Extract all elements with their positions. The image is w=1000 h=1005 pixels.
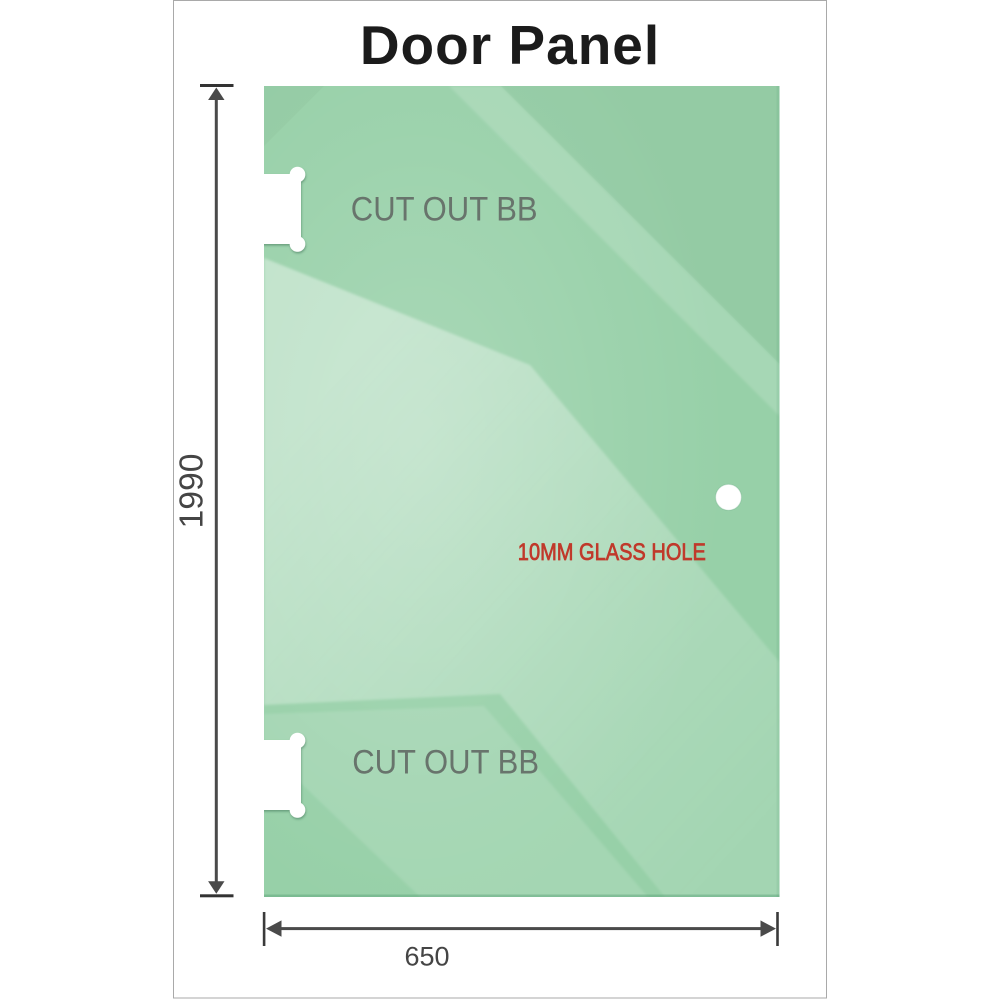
svg-text:10MM GLASS HOLE: 10MM GLASS HOLE xyxy=(518,538,706,565)
svg-text:Door Panel: Door Panel xyxy=(360,14,660,76)
svg-text:CUT OUT BB: CUT OUT BB xyxy=(352,743,539,781)
svg-text:1990: 1990 xyxy=(174,454,211,529)
svg-text:CUT OUT BB: CUT OUT BB xyxy=(351,190,538,228)
svg-text:650: 650 xyxy=(404,942,449,972)
